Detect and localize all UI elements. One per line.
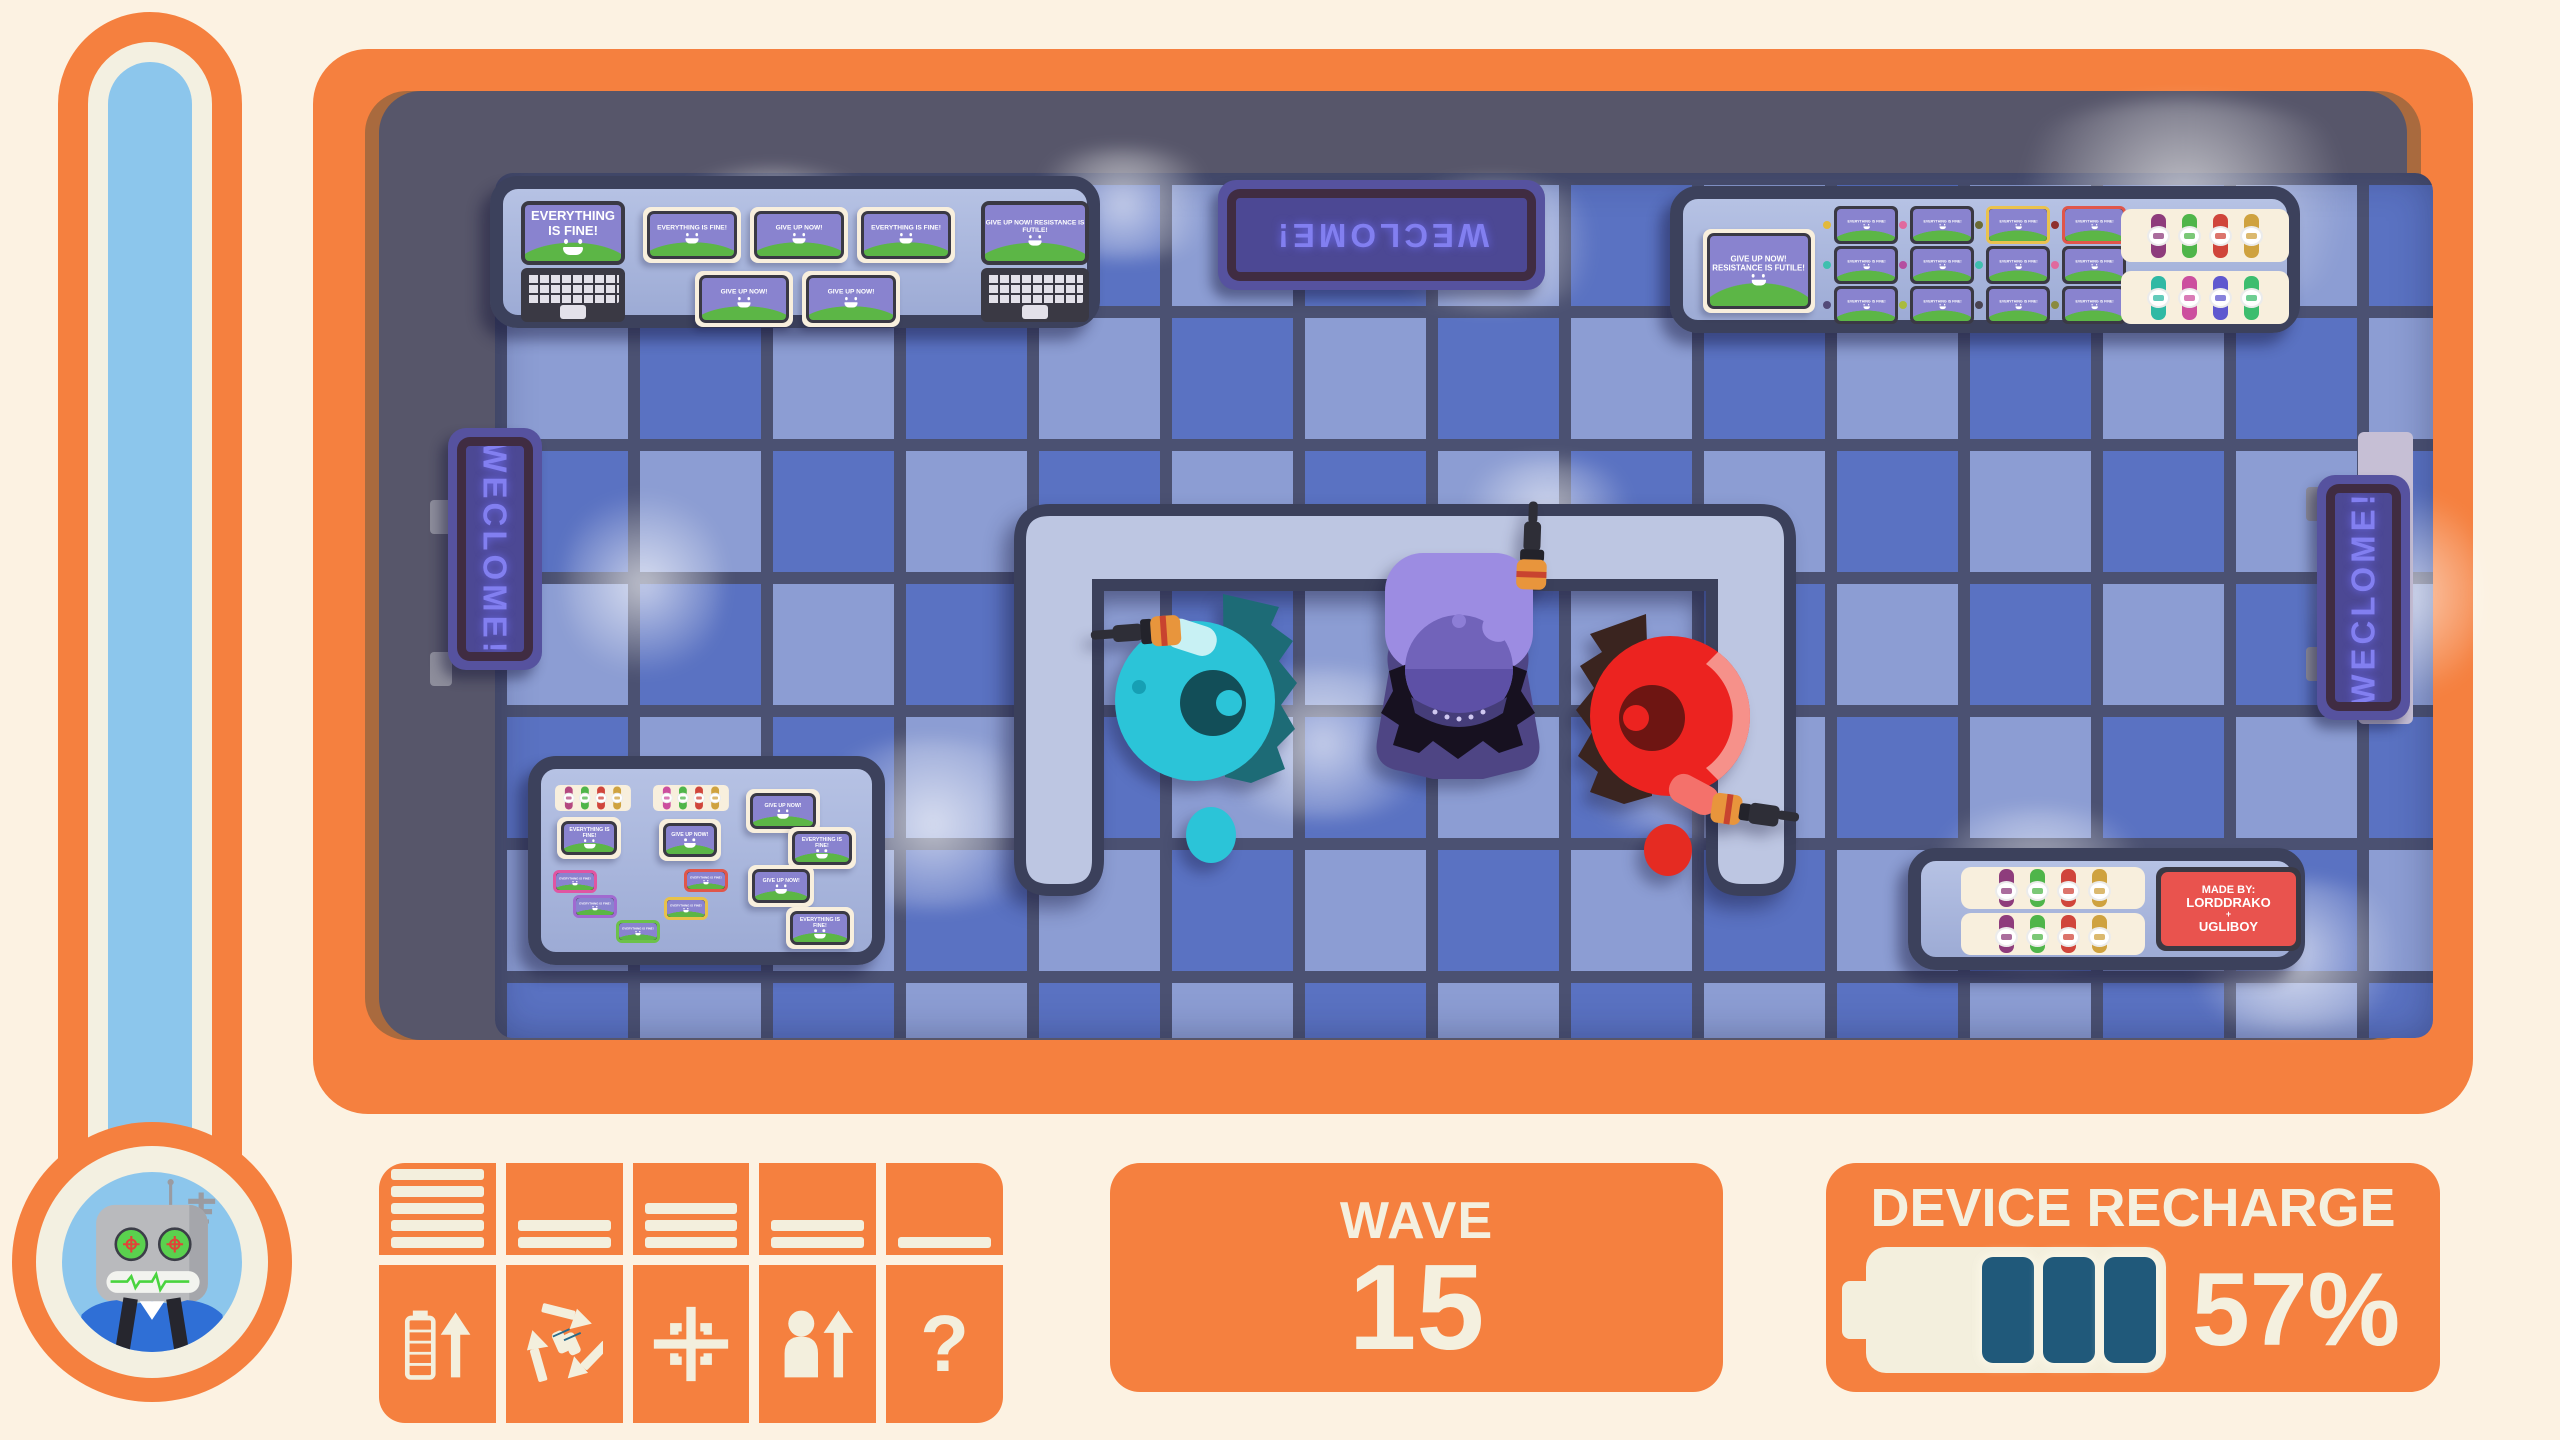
- smart-watch: [2030, 915, 2045, 953]
- watch-tray: [2121, 271, 2289, 324]
- recharge-percent: 57%: [2192, 1258, 2400, 1362]
- phone-device: EVERYTHING IS FINE!: [1975, 285, 2051, 325]
- phone-device: EVERYTHING IS FINE!: [684, 869, 728, 892]
- battery-charge-icon: [1866, 1247, 2166, 1373]
- smiley-face-icon: [2013, 224, 2023, 230]
- price-dot-icon: [1823, 301, 1831, 309]
- display-shelf-bottom-left: GIVE UP NOW! EVERYTHING IS FINE! GIVE UP…: [528, 756, 885, 965]
- arena-frame: WECLOME! WECLOME! WECLOME! EVERYTHING IS…: [313, 49, 2473, 1114]
- phone-device: EVERYTHING IS FINE!: [1823, 205, 1899, 245]
- robot-health-gauge-bulb: [12, 1122, 292, 1402]
- upgrade-level-recycle: [506, 1163, 623, 1255]
- robot-avatar: [62, 1178, 242, 1352]
- tablet-device: GIVE UP NOW!: [750, 207, 848, 263]
- phone-device: EVERYTHING IS FINE!: [616, 920, 660, 943]
- person-upgrade-icon: [779, 1302, 857, 1386]
- recycle-upgrade-button[interactable]: [506, 1265, 623, 1423]
- smart-watch: [2061, 869, 2076, 907]
- smiley-face-icon: [702, 880, 710, 885]
- smiley-face-icon: [896, 233, 916, 245]
- laptop-keyboard: [981, 268, 1089, 322]
- smart-watch: [2092, 869, 2107, 907]
- smart-watch: [2182, 214, 2197, 258]
- display-shelf-top-right: GIVE UP NOW! RESISTANCE IS FUTILE! EVERY…: [1670, 186, 2300, 333]
- tablet-device: EVERYTHING IS FINE!: [557, 817, 621, 859]
- phone-device: EVERYTHING IS FINE!: [553, 870, 597, 893]
- smart-watch: [2030, 869, 2045, 907]
- smart-watch: [2213, 214, 2228, 258]
- tablet-device: GIVE UP NOW!: [748, 865, 814, 907]
- tablet-device: GIVE UP NOW! RESISTANCE IS FUTILE!: [1703, 229, 1815, 313]
- welcome-sign-text: WECLOME!: [2345, 490, 2383, 705]
- tablet-row: GIVE UP NOW! GIVE UP NOW!: [695, 271, 900, 327]
- phone-device: EVERYTHING IS FINE!: [1975, 245, 2051, 285]
- welcome-sign-top: WECLOME!: [1218, 180, 1545, 290]
- smiley-face-icon: [634, 931, 642, 936]
- smiley-face-icon: [1937, 304, 1947, 310]
- tablet-device: EVERYTHING IS FINE!: [643, 207, 741, 263]
- gauge-fill: [108, 62, 192, 1172]
- phone-device: EVERYTHING IS FINE!: [1823, 245, 1899, 285]
- smiley-face-icon: [1861, 304, 1871, 310]
- phone-device: EVERYTHING IS FINE!: [573, 895, 617, 918]
- battery-segments: [1982, 1257, 2156, 1363]
- smart-watch: [565, 787, 573, 810]
- recharge-title: DEVICE RECHARGE: [1870, 1177, 2395, 1239]
- smiley-face-icon: [2013, 264, 2023, 270]
- watch-tray: [653, 785, 729, 811]
- smiley-face-icon: [772, 884, 789, 894]
- smiley-face-icon: [2089, 264, 2099, 270]
- smart-watch: [1999, 869, 2014, 907]
- smiley-face-icon: [841, 297, 861, 309]
- welcome-sign-right: WECLOME!: [2317, 475, 2410, 720]
- upgrade-panel: ?: [379, 1163, 1003, 1423]
- smart-watch: [2151, 214, 2166, 258]
- smiley-face-icon: [682, 908, 690, 913]
- price-dot-icon: [1975, 221, 1983, 229]
- tablet-device: EVERYTHING IS FINE!: [788, 827, 856, 869]
- price-dot-icon: [1823, 261, 1831, 269]
- crosshair-upgrade-button[interactable]: [633, 1265, 750, 1423]
- laptop-keyboard: [521, 268, 625, 322]
- device-recharge-panel: DEVICE RECHARGE 57%: [1826, 1163, 2440, 1392]
- price-dot-icon: [1975, 301, 1983, 309]
- red-technician-character: [1528, 564, 1818, 894]
- wave-value: 15: [1349, 1251, 1485, 1363]
- smiley-face-icon: [1861, 264, 1871, 270]
- smiley-face-icon: [774, 809, 791, 819]
- smiley-face-icon: [1748, 273, 1770, 286]
- display-shelf-bottom-right: MADE BY: LORDDRAKO + UGLIBOY: [1908, 848, 2305, 970]
- watch-tray: [1961, 867, 2145, 909]
- laptop: EVERYTHING IS FINE!: [521, 201, 625, 322]
- smiley-face-icon: [591, 906, 599, 911]
- price-dot-icon: [1899, 261, 1907, 269]
- smart-watch: [1999, 915, 2014, 953]
- smart-watch: [695, 787, 703, 810]
- smart-watch: [581, 787, 589, 810]
- phone-grid: EVERYTHING IS FINE! EVERYTHING IS FINE! …: [1823, 205, 2127, 325]
- smart-watch: [2213, 276, 2228, 320]
- smiley-face-icon: [2089, 224, 2099, 230]
- smiley-face-icon: [2089, 304, 2099, 310]
- smart-watch: [613, 787, 621, 810]
- smiley-face-icon: [789, 233, 809, 245]
- smart-watch: [2061, 915, 2076, 953]
- recycle-icon: [525, 1302, 603, 1386]
- battery-nub: [1842, 1281, 1870, 1339]
- upgrade-level-question: [886, 1163, 1003, 1255]
- upgrade-level-crosshair: [633, 1163, 750, 1255]
- watch-tray: [555, 785, 631, 811]
- phone-device: EVERYTHING IS FINE!: [1899, 285, 1975, 325]
- smiley-face-icon: [813, 849, 830, 859]
- tablet-device: GIVE UP NOW!: [695, 271, 793, 327]
- credits-author: LORDDRAKO: [2186, 896, 2271, 910]
- upgrade-level-battery: [379, 1163, 496, 1255]
- phone-device: EVERYTHING IS FINE!: [1899, 245, 1975, 285]
- smiley-face-icon: [1937, 224, 1947, 230]
- price-dot-icon: [2051, 301, 2059, 309]
- phone-device: EVERYTHING IS FINE!: [664, 897, 708, 920]
- price-dot-icon: [1975, 261, 1983, 269]
- smart-watch: [711, 787, 719, 810]
- smiley-face-icon: [734, 297, 754, 309]
- smiley-face-icon: [580, 839, 597, 849]
- wave-counter-panel: WAVE 15: [1110, 1163, 1723, 1392]
- tablet-device: EVERYTHING IS FINE!: [786, 907, 854, 949]
- watch-tray: [2121, 209, 2289, 262]
- smart-watch: [597, 787, 605, 810]
- robot-health-gauge-tube: [58, 12, 242, 1202]
- battery-upgrade-button[interactable]: [379, 1265, 496, 1423]
- battery-upgrade-icon: [398, 1302, 476, 1386]
- smiley-face-icon: [2013, 304, 2023, 310]
- display-shelf-top-left: EVERYTHING IS FINE! EVERYTHING IS FINE! …: [490, 176, 1100, 328]
- laptop-screen: GIVE UP NOW! RESISTANCE IS FUTILE!: [985, 205, 1085, 261]
- credits-title: MADE BY:: [2202, 884, 2256, 896]
- welcome-sign-text: WECLOME!: [476, 441, 514, 656]
- tablet-device: GIVE UP NOW!: [659, 819, 721, 861]
- question-icon: ?: [920, 1298, 969, 1390]
- phone-device: EVERYTHING IS FINE!: [2051, 205, 2127, 245]
- smart-watch: [2151, 276, 2166, 320]
- welcome-sign-text: WECLOME!: [1274, 216, 1489, 254]
- phone-device: EVERYTHING IS FINE!: [2051, 245, 2127, 285]
- crosshair-icon: [652, 1302, 730, 1386]
- phone-device: EVERYTHING IS FINE!: [1899, 205, 1975, 245]
- smiley-face-icon: [1025, 235, 1045, 247]
- smart-watch: [2244, 214, 2259, 258]
- welcome-sign-left: WECLOME!: [448, 428, 542, 670]
- laptop-screen: EVERYTHING IS FINE!: [525, 205, 621, 261]
- teal-technician-character: [1083, 549, 1353, 879]
- smart-watch: [2092, 915, 2107, 953]
- smart-watch: [663, 787, 671, 810]
- screwdriver-icon: [1710, 792, 1801, 834]
- person-upgrade-button[interactable]: [759, 1265, 876, 1423]
- price-dot-icon: [1823, 221, 1831, 229]
- phone-device: EVERYTHING IS FINE!: [1823, 285, 1899, 325]
- laptop: GIVE UP NOW! RESISTANCE IS FUTILE!: [981, 201, 1089, 322]
- tablet-device: EVERYTHING IS FINE!: [857, 207, 955, 263]
- price-dot-icon: [1899, 301, 1907, 309]
- watch-tray: [1961, 913, 2145, 955]
- price-dot-icon: [2051, 221, 2059, 229]
- screwdriver-icon: [1090, 615, 1182, 651]
- credits-author: UGLIBOY: [2199, 920, 2258, 934]
- upgrade-level-person: [759, 1163, 876, 1255]
- smiley-face-icon: [571, 881, 579, 886]
- tablet-row: EVERYTHING IS FINE! GIVE UP NOW! EVERYTH…: [643, 207, 955, 263]
- smiley-face-icon: [811, 929, 828, 939]
- price-dot-icon: [2051, 261, 2059, 269]
- smart-watch: [2182, 276, 2197, 320]
- phone-device: EVERYTHING IS FINE!: [1975, 205, 2051, 245]
- smiley-face-icon: [558, 239, 588, 257]
- tablet-device: GIVE UP NOW!: [802, 271, 900, 327]
- smiley-face-icon: [681, 838, 698, 848]
- smiley-face-icon: [1937, 264, 1947, 270]
- gauge-bulb-window: [62, 1172, 242, 1352]
- smiley-face-icon: [1861, 224, 1871, 230]
- mystery-upgrade-button[interactable]: ?: [886, 1265, 1003, 1423]
- phone-device: EVERYTHING IS FINE!: [2051, 285, 2127, 325]
- price-dot-icon: [1899, 221, 1907, 229]
- smiley-face-icon: [682, 233, 702, 245]
- credits-tablet: MADE BY: LORDDRAKO + UGLIBOY: [2156, 867, 2301, 951]
- smart-watch: [2244, 276, 2259, 320]
- smart-watch: [679, 787, 687, 810]
